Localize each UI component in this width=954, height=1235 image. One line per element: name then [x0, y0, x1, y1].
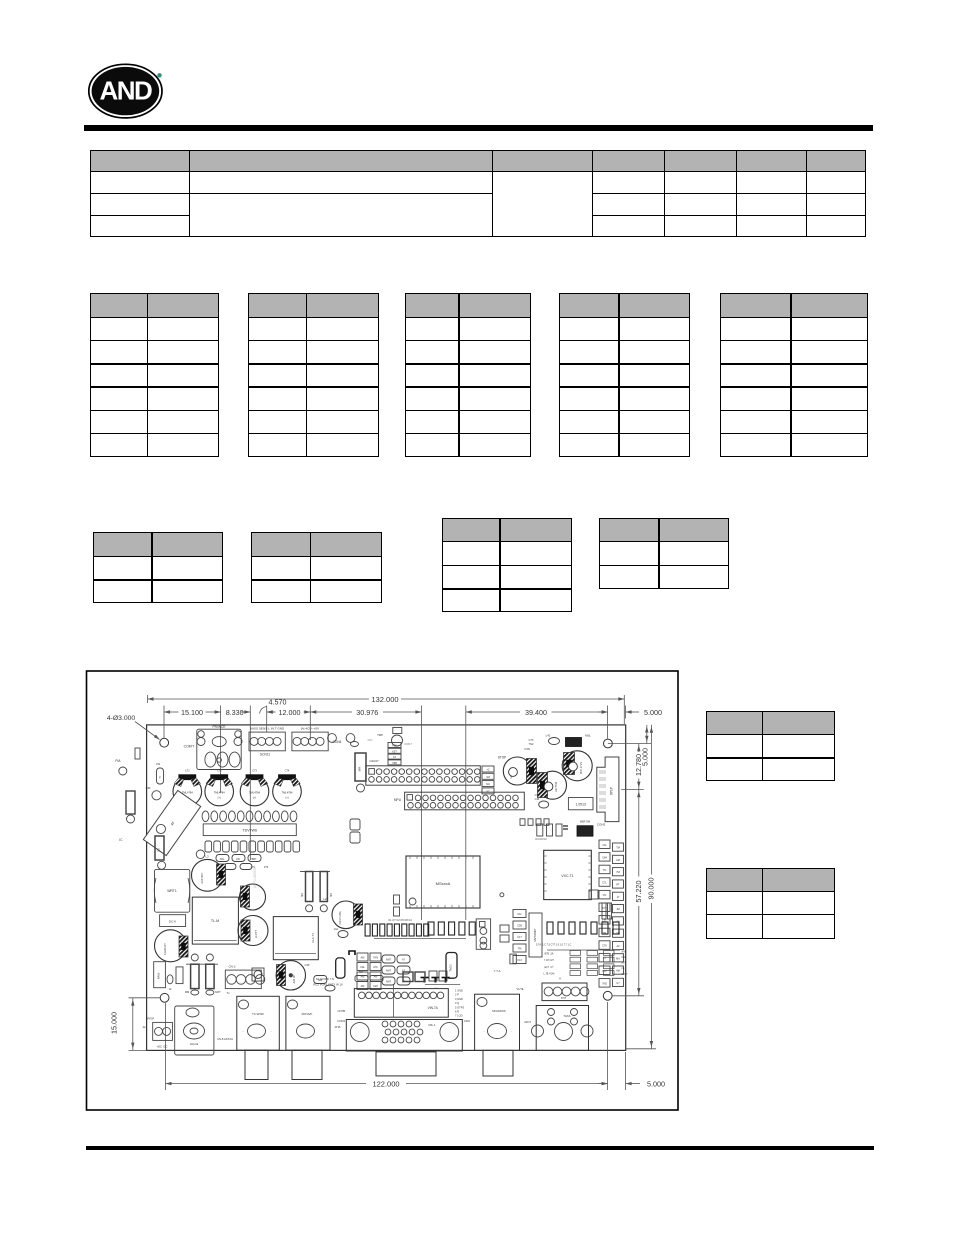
svg-text:AM: AM [616, 970, 620, 973]
svg-text:EC? .C?: EC? .C? [544, 966, 554, 969]
svg-text:TML4784: TML4784 [282, 791, 294, 795]
svg-text:AM7: AM7 [386, 981, 392, 984]
svg-text:12.780: 12.780 [634, 754, 643, 776]
svg-text:LW: LW [236, 857, 240, 861]
svg-text:CON7: CON7 [404, 742, 412, 746]
svg-text:A7K: A7K [373, 966, 378, 969]
svg-text:122.000: 122.000 [372, 1079, 399, 1088]
svg-text:1G1: 1G1 [334, 927, 339, 931]
svg-text:AM: AM [616, 859, 620, 862]
svg-text:C1 C7 C2 C5 C8 C4: C1 C7 C2 C5 C8 C4 [388, 918, 412, 922]
svg-text:5.000: 5.000 [644, 708, 662, 717]
svg-text:5 GTPS: 5 GTPS [455, 1005, 464, 1009]
svg-text:62O7: 62O7 [524, 1020, 531, 1024]
svg-text:C74: C74 [285, 769, 290, 773]
svg-text:1 GND: 1 GND [455, 989, 463, 993]
svg-text:TL.M: TL.M [211, 919, 219, 923]
svg-text:MA: MA [616, 957, 620, 960]
svg-text:V: V [559, 977, 561, 981]
svg-text:C34: C34 [535, 797, 540, 801]
svg-text:T7L: T7L [602, 869, 607, 872]
svg-text:MSxxxA: MSxxxA [436, 881, 451, 886]
svg-text:1k: 1k [169, 987, 172, 991]
svg-text:8P1P: 8P1P [610, 787, 614, 795]
svg-text:F: F [159, 776, 161, 780]
svg-text:C37: C37 [535, 793, 540, 797]
svg-text:C84: C84 [602, 856, 607, 859]
svg-text:5.7A ·1 C.7.5 C?7 1.9 1.0: 5.7A ·1 C.7.5 C?7 1.9 1.0 7.7 1.C [536, 944, 572, 947]
svg-text:TC.WWK: TC.WWK [252, 1012, 264, 1016]
svg-text:PRI/NCE: PRI/NCE [213, 725, 226, 729]
svg-text:TAN: TAN [373, 957, 378, 960]
svg-text:C7K: C7K [602, 945, 607, 948]
svg-text:C11: C11 [517, 913, 522, 916]
svg-text:MIL.1: MIL.1 [429, 1023, 436, 1027]
svg-text:MB: MB [301, 893, 304, 897]
svg-text:TN2: TN2 [529, 742, 534, 746]
svg-text:V1/7E: V1/7E [516, 987, 523, 991]
svg-text:30.976: 30.976 [356, 708, 378, 717]
svg-text:JM: JM [616, 908, 619, 911]
svg-text:MER SW: MER SW [580, 821, 591, 824]
svg-text:AM: AM [361, 985, 365, 988]
svg-text:(+): (+) [285, 796, 288, 800]
svg-text:PT: PT [616, 884, 620, 887]
svg-text:7 LOD: 7 LOD [455, 1014, 463, 1018]
svg-text:BASS SENS L.IN.T GND: BASS SENS L.IN.T GND [250, 727, 285, 731]
svg-text:1M: 1M [486, 775, 490, 779]
svg-text:HM: HM [146, 786, 151, 790]
svg-text:MV7AM07: MV7AM07 [533, 928, 537, 942]
svg-text:·: · [242, 1029, 243, 1034]
svg-text:C2A: C2A [622, 956, 627, 959]
svg-text:(+): (+) [253, 796, 256, 800]
svg-text:132.000: 132.000 [371, 695, 398, 704]
svg-text:C7X: C7X [528, 738, 533, 742]
svg-text:XLA.T1: XLA.T1 [311, 933, 315, 943]
svg-text:7M: 7M [616, 871, 619, 874]
svg-text:90.000: 90.000 [646, 878, 655, 900]
svg-text:1.0513: 1.0513 [576, 803, 586, 807]
svg-text:15.100: 15.100 [181, 708, 203, 717]
svg-text:Y Y A: Y Y A [494, 969, 501, 973]
svg-text:MO/AWOK: MO/AWOK [492, 1009, 506, 1013]
svg-text:BP/GP: BP/GP [146, 1017, 154, 1021]
svg-text:WRT1: WRT1 [167, 889, 177, 893]
svg-text:Tx: Tx [226, 991, 230, 995]
svg-text:15.000: 15.000 [110, 1012, 119, 1034]
svg-text:CN-8 AXXXA: CN-8 AXXXA [217, 1037, 233, 1041]
svg-text:MM: MM [185, 990, 189, 994]
svg-text:M1: M1 [486, 782, 490, 786]
svg-text:17L: 17L [602, 894, 607, 897]
svg-text:L.7B 4.0%: L.7B 4.0% [543, 973, 555, 976]
svg-text:IC: IC [119, 838, 123, 842]
svg-text:12A00 HY: 12A00 HY [163, 943, 167, 955]
svg-text:22+: 22+ [143, 1025, 148, 1029]
svg-text:A7: A7 [393, 756, 397, 759]
svg-text:A3P MV7: A3P MV7 [200, 872, 204, 883]
svg-text:C2B: C2B [517, 925, 522, 928]
svg-text:F4: F4 [622, 967, 625, 970]
svg-text:·: · [270, 1029, 271, 1034]
svg-text:MR: MR [358, 766, 362, 771]
svg-text:L3: L3 [205, 855, 209, 859]
svg-text:S7I7: S7I7 [561, 996, 567, 1000]
svg-text:AM2: AM2 [367, 738, 373, 742]
svg-text:TML4784: TML4784 [249, 791, 261, 795]
svg-text:7.1P C27: 7.1P C27 [544, 959, 555, 962]
svg-text:C3N: C3N [524, 747, 530, 751]
svg-text:M7: M7 [359, 971, 363, 974]
svg-text:KDO: KDO [464, 1019, 470, 1023]
svg-text:VXC.T1: VXC.T1 [561, 874, 574, 878]
svg-text:C72: C72 [217, 769, 222, 773]
svg-text:57.220: 57.220 [634, 881, 643, 903]
svg-text:RC2 VGA1 CXTY W 16: RC2 VGA1 CXTY W 16 [313, 983, 343, 987]
svg-text:VIN.7A: VIN.7A [428, 1006, 439, 1010]
svg-text:2 P: 2 P [455, 993, 459, 997]
svg-text:MXT: MXT [215, 990, 221, 994]
svg-text:TA/G2: TA/G2 [449, 964, 453, 972]
svg-text:(+): (+) [218, 796, 221, 800]
svg-text:TAXA: TAXA [563, 1014, 570, 1018]
svg-text:S2 S3 RW 7 N: S2 S3 RW 7 N [316, 977, 334, 981]
svg-text:C7: C7 [616, 982, 620, 985]
svg-text:X9B: X9B [392, 762, 397, 765]
svg-text:C73: C73 [252, 769, 257, 773]
svg-text:5.000: 5.000 [647, 1079, 665, 1088]
svg-text:3 GND: 3 GND [455, 997, 463, 1001]
svg-text:M47.17VV: M47.17VV [579, 762, 583, 774]
svg-text:|A| 4CU--+5V: |A| 4CU--+5V [301, 727, 320, 731]
svg-text:C4 C6 C2: C4 C6 C2 [535, 837, 547, 841]
svg-text:A2T: A2T [622, 962, 627, 965]
svg-text:C17: C17 [517, 936, 522, 939]
svg-text:A37T9M: A37T9M [554, 782, 558, 792]
svg-text:PIA: PIA [115, 759, 121, 763]
svg-text:C7A7: C7A7 [622, 973, 629, 976]
svg-text:C2C07: C2C07 [369, 759, 379, 763]
svg-text:C71: C71 [185, 769, 190, 773]
svg-text:HO+0k: HO+0k [190, 1042, 199, 1046]
svg-text:TM: TM [616, 847, 620, 850]
svg-text:C3P: C3P [304, 963, 309, 967]
svg-text:C7L: C7L [602, 882, 607, 885]
svg-text:MPU: MPU [394, 798, 402, 802]
svg-text:STOP: STOP [498, 756, 507, 760]
svg-text:NAW: NAW [157, 972, 161, 979]
svg-text:CN: CN [156, 762, 160, 766]
svg-text:A5L: A5L [220, 857, 225, 861]
svg-text:MO/AVK: MO/AVK [302, 1012, 313, 1016]
svg-text:S5: S5 [157, 848, 161, 852]
svg-text:17: 17 [617, 896, 620, 899]
svg-text:MSL: MSL [585, 734, 591, 738]
svg-text:·: · [483, 1029, 484, 1034]
svg-text:TMP: TMP [377, 733, 383, 737]
svg-text:TML4784: TML4784 [214, 791, 226, 795]
svg-text:MB: MB [330, 893, 333, 897]
svg-text:F75: F75 [264, 866, 269, 869]
svg-text:COUPLING: COUPLING [339, 911, 342, 924]
svg-text:A30 M7: A30 M7 [293, 974, 296, 983]
svg-text:CON3: CON3 [337, 1019, 345, 1023]
svg-text:6 R: 6 R [455, 1010, 459, 1014]
svg-text:A2: A2 [616, 945, 620, 948]
svg-text:ATPL: ATPL [334, 1025, 341, 1029]
svg-text:C72: C72 [602, 907, 607, 910]
svg-text:TM: TM [518, 948, 522, 951]
svg-text:+DC -DC: +DC -DC [157, 1045, 168, 1049]
svg-text:COM'T: COM'T [184, 745, 195, 749]
svg-text:C13: C13 [517, 959, 522, 962]
svg-text:C2K: C2K [373, 985, 378, 988]
svg-text:AM7: AM7 [386, 959, 392, 962]
svg-text:AAB: AAB [622, 951, 627, 954]
svg-text:CAL: CAL [360, 966, 365, 969]
svg-text:A7: A7 [402, 959, 406, 962]
svg-text:TDV7W6: TDV7W6 [242, 829, 257, 833]
svg-text:×2: ×2 [487, 768, 491, 772]
svg-text:9C: 9C [486, 789, 489, 793]
svg-text:L42: L42 [546, 734, 551, 738]
svg-text:BB7: BB7 [252, 857, 257, 861]
svg-text:SCN11: SCN11 [260, 753, 270, 757]
svg-text:CON3: CON3 [597, 823, 606, 827]
svg-text:AM7: AM7 [386, 970, 392, 973]
svg-text:AM: AM [361, 957, 365, 960]
svg-text:L2: L2 [323, 897, 327, 901]
svg-text:H.OYT: H.OYT [254, 930, 258, 938]
svg-text:7AL: 7AL [602, 844, 607, 847]
svg-text:4-Ø3.000: 4-Ø3.000 [107, 715, 136, 722]
svg-text:CN-2: CN-2 [228, 965, 235, 969]
svg-text:39.400: 39.400 [525, 708, 547, 717]
svg-text:CN7B: CN7B [338, 1009, 346, 1013]
svg-text:12.000: 12.000 [279, 708, 301, 717]
svg-text:4.570: 4.570 [269, 697, 287, 706]
svg-text:UNPLUGGED: UNPLUGGED [253, 867, 257, 888]
svg-text:DC-K: DC-K [169, 920, 176, 924]
svg-text:7M2: 7M2 [602, 982, 607, 985]
svg-text:·: · [510, 1029, 511, 1034]
svg-text:4 Q: 4 Q [455, 1001, 459, 1005]
svg-text:B7B .2A: B7B .2A [545, 953, 554, 956]
svg-text:K5?: K5? [392, 750, 397, 753]
